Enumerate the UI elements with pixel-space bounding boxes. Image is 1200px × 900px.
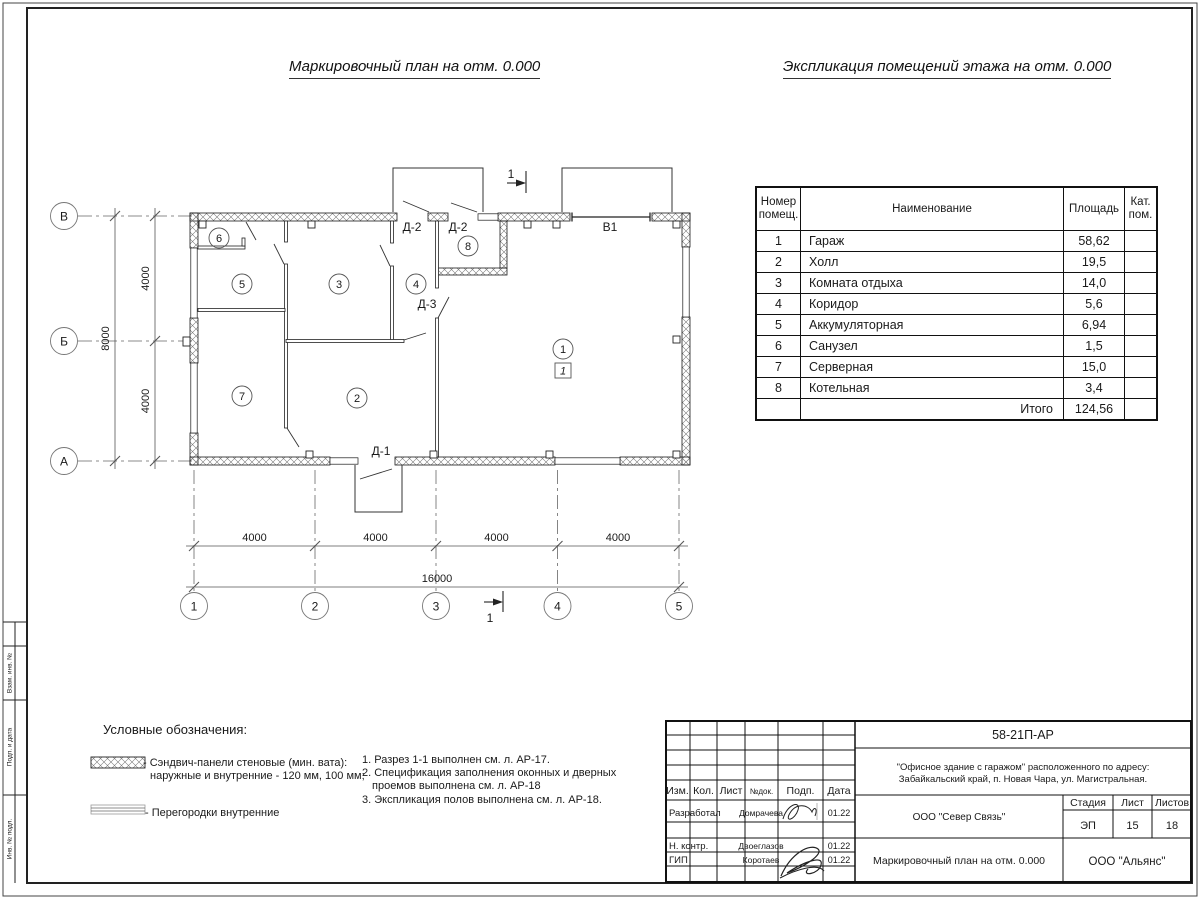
stamp-object-line2: Забайкальский край, п. Новая Чара, ул. М… [899,774,1147,785]
stamp-col-izm: Изм. [666,785,689,797]
axis-row-label: А [60,455,68,469]
axis-col-label: 5 [676,600,683,614]
dim-label: 4000 [606,532,630,544]
legend-swatch-sandwich [90,755,146,771]
exterior-walls [190,213,690,465]
stamp-sheets-label: Листов [1155,797,1190,809]
stamp-role: ГИП [669,855,688,866]
dim-label: 4000 [484,532,508,544]
stamp-stage-label: Стадия [1070,797,1106,809]
axis-col-label: 3 [433,600,440,614]
notes-block: 1. Разрез 1-1 выполнен см. л. АР-17. 2. … [362,754,616,807]
door-label-d2-left: Д-2 [403,220,422,234]
legend-swatch-partition [90,803,146,817]
stamp-stage-value: ЭП [1080,820,1096,832]
stamp-date: 01.22 [828,841,851,851]
room-number: 6 [216,233,222,245]
room-number: 5 [239,279,245,291]
legend-partition-text: - Перегородки внутренние [145,807,279,820]
stamp-sheet-label: Лист [1121,797,1144,809]
gate-label-b1: В1 [603,220,618,234]
table-total-row: Итого 124,56 [756,399,1157,421]
stamp-col-podp: Подп. [787,785,815,797]
total-label: Итого [801,399,1064,421]
floor-type-mark: 1 [560,366,566,378]
side-stamp-label: Взам. инв. № [7,653,14,693]
plan-title: Маркировочный план на отм. 0.000 [289,58,540,79]
dim-label: 4000 [140,389,152,413]
stamp-doc-number: 58-21П-АР [992,728,1054,742]
axis-row-label: Б [60,335,68,349]
stamp-date: 01.22 [828,808,851,818]
dim-label: 4000 [363,532,387,544]
stamp-role: Н. контр. [669,841,708,852]
section-mark-label: 1 [508,167,515,181]
stamp-role: Разработал [669,808,721,819]
header-area: Площадь [1064,187,1125,231]
note-line: 1. Разрез 1-1 выполнен см. л. АР-17. [362,754,550,766]
room-number: 8 [465,241,471,253]
table-row: 6 Санузел 1,5 [756,336,1157,357]
stamp-company: ООО "Альянс" [1089,856,1166,868]
stamp-date: 01.22 [828,855,851,865]
table-row: 2 Холл 19,5 [756,252,1157,273]
side-stamp-label: Инв. № подл. [7,819,14,860]
note-line: 2. Спецификация заполнения оконных и две… [362,767,616,779]
stamp-col-ndok: №док. [750,787,773,796]
axis-row-label: В [60,210,68,224]
section-mark-label: 1 [487,611,494,625]
drawing-sheet: { "titles": { "plan": "Маркировочный пла… [0,0,1200,900]
dim-total-label: 16000 [422,573,453,585]
dim-total-label: 8000 [100,326,112,350]
table-header-row: Номер помещ. Наименование Площадь Кат. п… [756,187,1157,231]
legend-sandwich-text: - Сэндвич-панели стеновые (мин. вата): н… [143,757,365,782]
header-room-number: Номер помещ. [756,187,801,231]
header-name: Наименование [801,187,1064,231]
stamp-col-data: Дата [827,785,850,797]
dim-label: 4000 [242,532,266,544]
stamp-name: Коротаев [743,855,780,865]
side-stamp: Взам. инв. № Подп. и дата Инв. № подл. [3,622,27,883]
axis-col-label: 1 [191,600,198,614]
dim-label: 4000 [140,266,152,290]
explication-table: Номер помещ. Наименование Площадь Кат. п… [755,186,1158,421]
partitions [198,221,439,457]
stamp-col-kol: Кол. [693,785,714,797]
stamp-object-line1: "Офисное здание с гаражом" расположенног… [897,762,1150,773]
legend-title: Условные обозначения: [103,722,247,737]
stamp-sheets-value: 18 [1166,820,1178,832]
column-markers [183,221,680,458]
room-number: 7 [239,391,245,403]
stamp-name: Домрачева [739,808,783,818]
dimensions: 4000 4000 4000 4000 16000 4000 4000 8000 [100,208,688,592]
windows [191,214,689,464]
explication-title: Экспликация помещений этажа на отм. 0.00… [783,58,1111,79]
door-label-d2-right: Д-2 [449,220,468,234]
room-number: 3 [336,279,342,291]
table-row: 5 Аккумуляторная 6,94 [756,315,1157,336]
door-label-d3: Д-3 [418,297,437,311]
stamp-organization: ООО "Север Связь" [913,812,1006,823]
stamp-sheet-value: 15 [1126,820,1138,832]
side-stamp-label: Подп. и дата [7,727,14,766]
table-row: 4 Коридор 5,6 [756,294,1157,315]
table-row: 1 Гараж 58,62 [756,231,1157,252]
stamp-drawing-name: Маркировочный план на отм. 0.000 [873,855,1045,867]
table-row: 7 Серверная 15,0 [756,357,1157,378]
axis-col-label: 4 [554,600,561,614]
title-block: Изм. Кол. Лист №док. Подп. Дата Разработ… [665,720,1192,883]
total-area: 124,56 [1064,399,1125,421]
table-row: 8 Котельная 3,4 [756,378,1157,399]
table-row: 3 Комната отдыха 14,0 [756,273,1157,294]
room-number: 2 [354,393,360,405]
note-line: проемов выполнена см. л. АР-18 [362,780,541,792]
note-line: 3. Экспликация полов выполнена см. л. АР… [362,794,602,806]
stamp-name: Двоеглазов [738,841,784,851]
room-number: 4 [413,279,419,291]
stamp-col-list: Лист [720,785,743,797]
room-number: 1 [560,344,566,356]
axis-col-label: 2 [312,600,319,614]
header-category: Кат. пом. [1125,187,1158,231]
door-label-d1: Д-1 [372,444,391,458]
